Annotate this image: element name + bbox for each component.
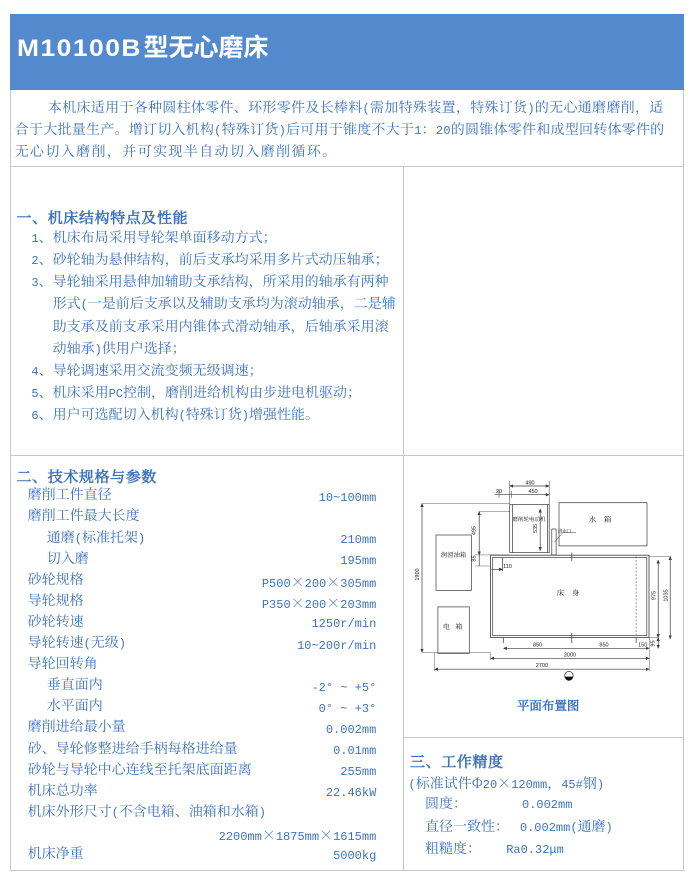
svg-text:490: 490 [525,480,534,486]
svg-text:磨削轮电动机: 磨削轮电动机 [513,515,546,523]
svg-text:1900: 1900 [415,568,421,580]
svg-text:2000: 2000 [564,653,576,659]
svg-text:450: 450 [528,489,537,495]
svg-text:495: 495 [472,526,478,535]
svg-text:535: 535 [533,524,539,533]
svg-text:润滑油箱: 润滑油箱 [441,550,467,559]
svg-text:电 箱: 电 箱 [443,621,464,631]
svg-text:水 箱: 水 箱 [589,515,615,525]
svg-text:85: 85 [472,555,478,561]
svg-text:95: 95 [651,640,657,646]
svg-text:150: 150 [638,643,647,649]
svg-text:975: 975 [652,591,658,600]
svg-text:1035: 1035 [664,589,670,601]
svg-text:2700: 2700 [536,663,548,669]
svg-text:110: 110 [503,564,512,570]
svg-text:850: 850 [533,643,542,649]
svg-text:床 身: 床 身 [557,589,583,599]
svg-text:850: 850 [599,643,608,649]
svg-text:20: 20 [496,489,502,495]
svg-text:进水口: 进水口 [558,529,572,535]
